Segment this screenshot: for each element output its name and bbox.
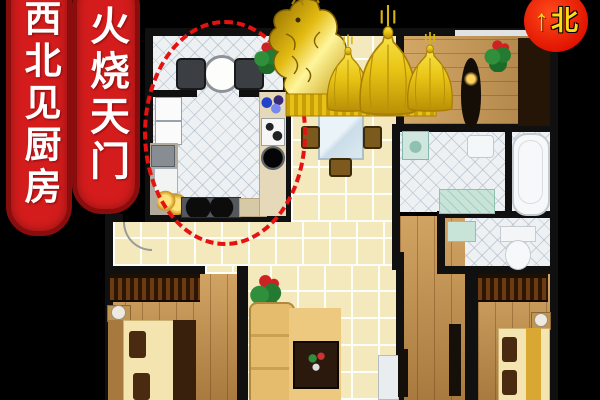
wall bbox=[550, 28, 558, 400]
bed-runner bbox=[526, 328, 541, 400]
bedside-lamp bbox=[534, 313, 548, 327]
study-wardrobe bbox=[518, 38, 550, 126]
cabinet bbox=[378, 355, 399, 400]
dining-chair bbox=[329, 158, 352, 177]
bathroom-sink bbox=[467, 135, 494, 158]
banner-text: 火烧天门 bbox=[77, 5, 135, 185]
money-bag-icon bbox=[408, 32, 453, 111]
wall bbox=[437, 266, 550, 274]
banner-fire-heaven-gate: 火烧天门 bbox=[72, 0, 140, 214]
floor-lamp bbox=[461, 58, 481, 128]
dining-table bbox=[318, 114, 364, 160]
pillow bbox=[502, 370, 517, 395]
toilet-sink bbox=[447, 221, 476, 242]
bedroom-left-doorway bbox=[205, 266, 237, 274]
wardrobe-fringe bbox=[110, 274, 200, 302]
bed-headboard bbox=[108, 320, 123, 400]
wall bbox=[105, 266, 205, 274]
north-label: 北 bbox=[551, 8, 578, 35]
shower bbox=[439, 189, 495, 214]
plant-icon bbox=[484, 38, 512, 72]
pillow bbox=[133, 373, 150, 400]
pillow bbox=[129, 331, 146, 358]
wall bbox=[465, 266, 478, 400]
pillow bbox=[502, 337, 517, 362]
coffee-table bbox=[293, 341, 339, 389]
wall bbox=[437, 211, 445, 274]
bedside-lamp bbox=[111, 305, 126, 320]
bathtub-inner bbox=[518, 140, 543, 204]
wardrobe-fringe bbox=[478, 274, 548, 302]
golden-dragon-statue bbox=[262, 0, 462, 120]
tv bbox=[398, 349, 408, 397]
wall bbox=[237, 266, 248, 400]
banner-northwest-kitchen: 西北见厨房 bbox=[6, 0, 72, 236]
lamp-glow bbox=[464, 72, 478, 86]
bed-runner bbox=[173, 320, 196, 400]
tv-console bbox=[449, 324, 461, 396]
washing-machine bbox=[402, 131, 429, 160]
banner-text: 西北见厨房 bbox=[12, 0, 66, 209]
wall bbox=[505, 130, 512, 214]
fengshui-floorplan-scene: 西北见厨房 火烧天门 ↑ 北 bbox=[0, 0, 600, 400]
north-arrow-icon: ↑ bbox=[534, 6, 549, 36]
toilet-bowl bbox=[505, 240, 531, 270]
wall bbox=[392, 124, 400, 270]
dining-chair bbox=[363, 126, 382, 149]
